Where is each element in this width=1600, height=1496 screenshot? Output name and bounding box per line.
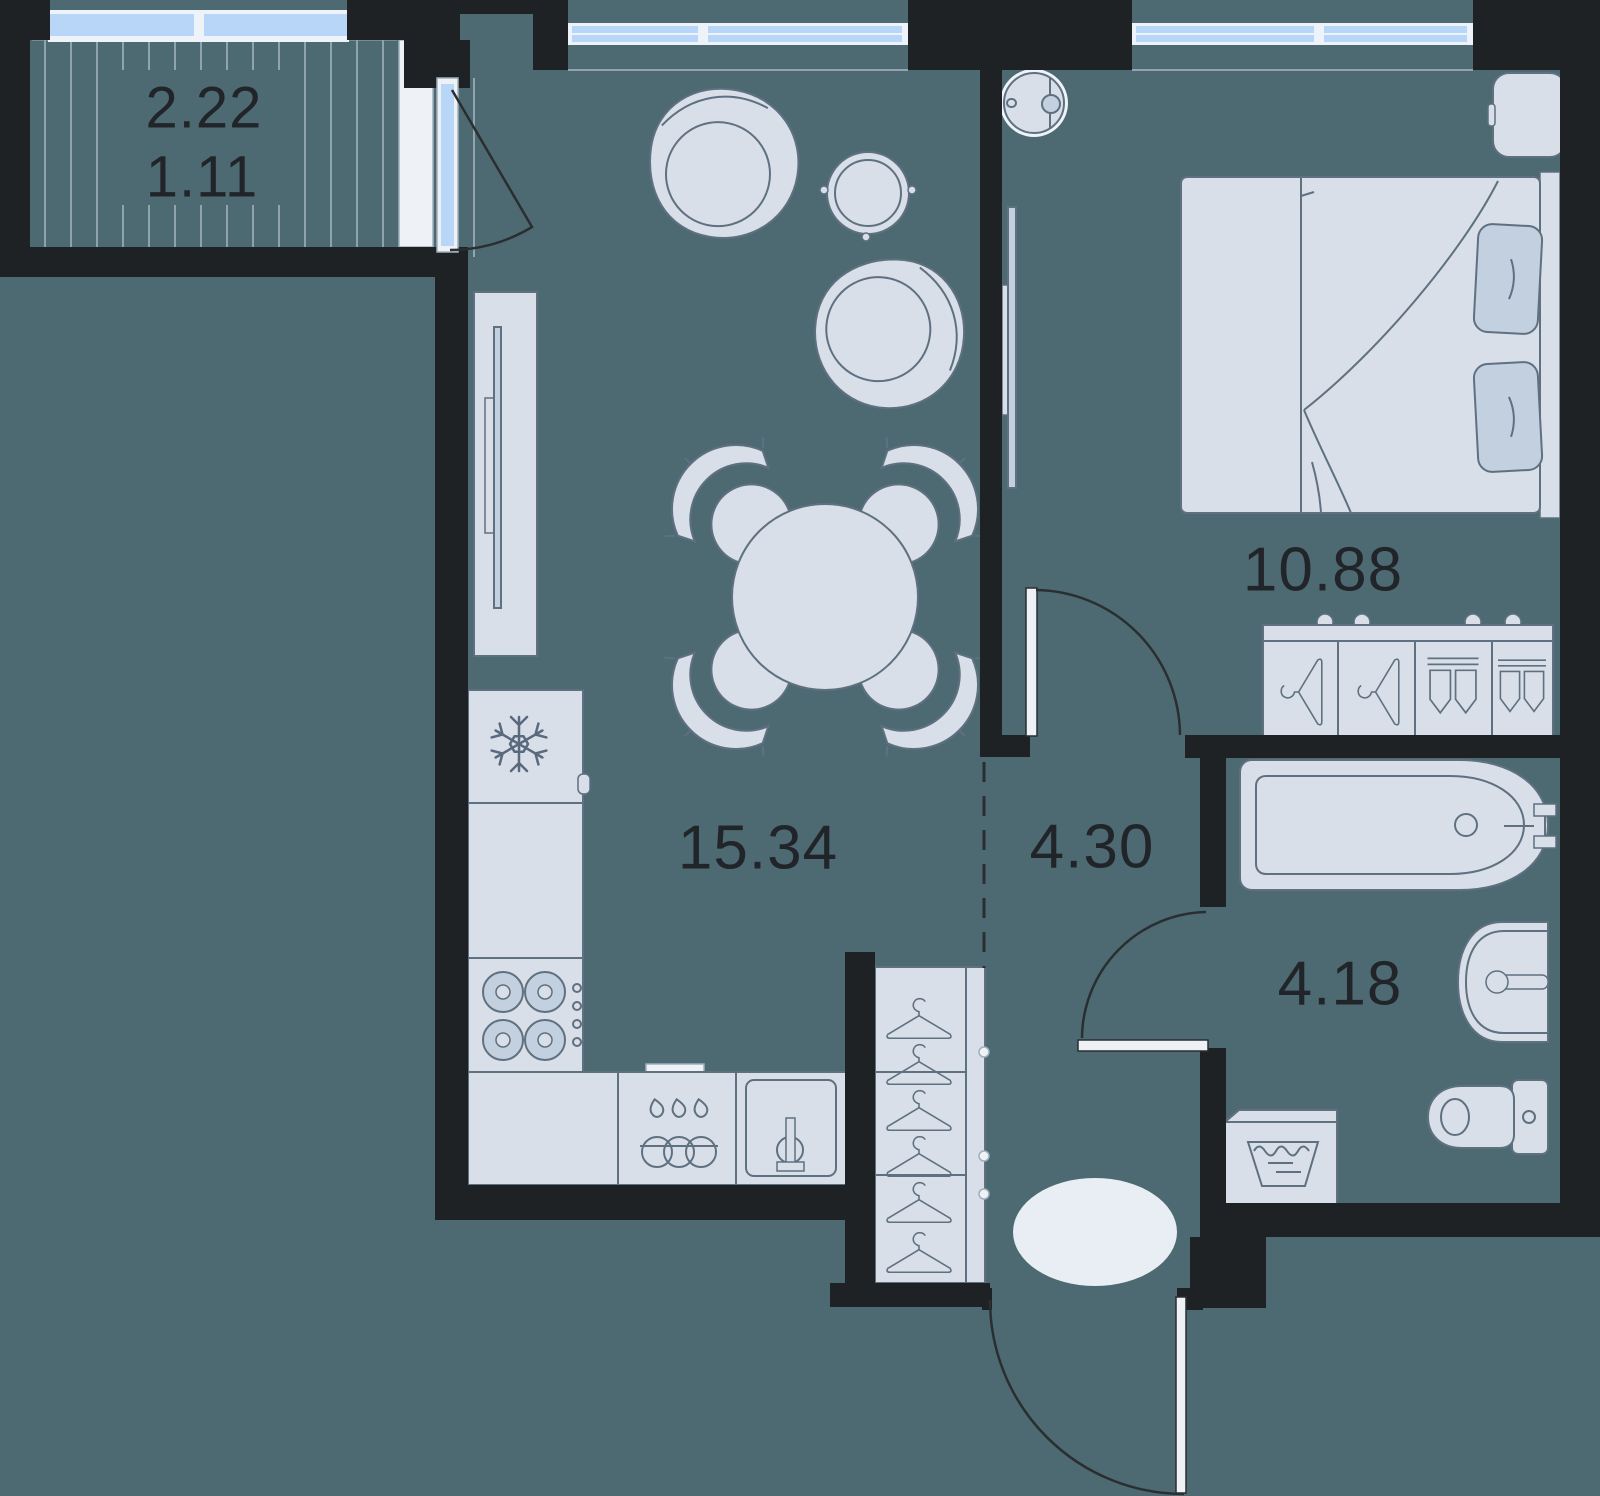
kitchen-counter [468,803,583,958]
pillow [1473,223,1543,334]
bedroom-area: 10.88 [1243,535,1403,606]
bathtub [1240,760,1556,890]
kitchen-sink [736,1072,846,1185]
pillow [1473,361,1543,472]
bathroom-area: 4.18 [1278,949,1403,1020]
floor-plan: 2.22 1.11 15.34 4.30 10.88 4.18 [0,0,1600,1496]
bed [1181,172,1560,518]
living-kitchen-area: 15.34 [678,813,838,884]
doormat-rug [1013,1178,1177,1286]
wardrobe [875,967,989,1283]
balcony-area-reduced: 1.11 [146,144,259,211]
balcony-area-total: 2.22 [146,75,263,142]
corner-counter [468,1072,618,1185]
washing-machine [1225,1110,1337,1205]
washbasin [1458,922,1548,1042]
nightstand [1488,73,1566,157]
stove [468,958,583,1072]
fridge [468,690,590,803]
dresser [1263,614,1553,737]
tv-console [474,292,537,656]
ceiling-light [1000,69,1068,137]
hallway-area: 4.30 [1030,812,1155,883]
dining-table [732,504,918,690]
toilet [1428,1080,1548,1154]
balcony-glazing [48,10,349,42]
headboard [1540,172,1560,518]
dishwasher [618,1064,736,1185]
